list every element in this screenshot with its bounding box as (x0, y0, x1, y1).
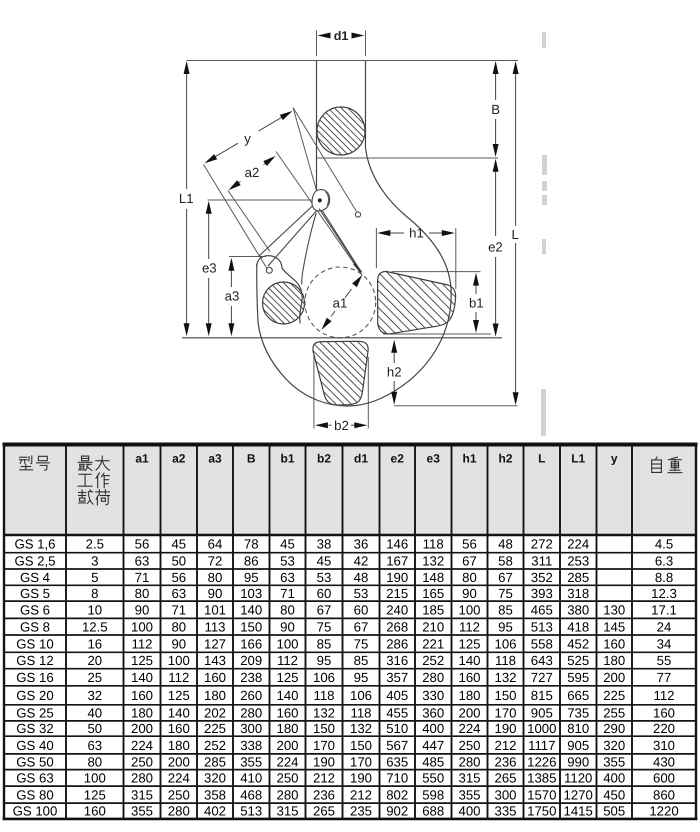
svg-text:e2: e2 (488, 240, 503, 255)
svg-text:150: 150 (313, 721, 335, 736)
svg-text:63: 63 (171, 586, 186, 601)
svg-text:272: 272 (531, 537, 553, 552)
svg-text:a2: a2 (245, 165, 260, 180)
svg-text:132: 132 (313, 706, 335, 721)
svg-text:402: 402 (204, 804, 226, 819)
svg-text:167: 167 (386, 554, 408, 569)
svg-text:300: 300 (494, 787, 516, 802)
svg-text:190: 190 (350, 771, 372, 786)
svg-text:180: 180 (603, 653, 625, 668)
svg-text:GS 6: GS 6 (20, 603, 50, 618)
svg-text:b1: b1 (469, 296, 484, 311)
svg-text:143: 143 (204, 653, 226, 668)
svg-text:166: 166 (240, 636, 262, 651)
svg-text:236: 236 (494, 755, 516, 770)
svg-text:160: 160 (84, 804, 106, 819)
svg-text:1385: 1385 (527, 771, 556, 786)
svg-text:106: 106 (350, 688, 372, 703)
svg-text:90: 90 (135, 603, 150, 618)
svg-text:71: 71 (135, 570, 150, 585)
svg-text:200: 200 (168, 755, 190, 770)
svg-text:112: 112 (277, 653, 298, 668)
svg-text:32: 32 (87, 688, 102, 703)
svg-text:418: 418 (567, 619, 589, 634)
svg-text:200: 200 (276, 738, 298, 753)
svg-text:355: 355 (131, 804, 153, 819)
svg-text:290: 290 (603, 721, 625, 736)
svg-text:1000: 1000 (527, 721, 556, 736)
svg-text:180: 180 (131, 706, 153, 721)
svg-text:315: 315 (276, 804, 298, 819)
svg-text:100: 100 (84, 771, 106, 786)
svg-text:335: 335 (494, 804, 516, 819)
svg-text:160: 160 (458, 670, 480, 685)
svg-text:77: 77 (657, 670, 672, 685)
svg-text:d1: d1 (354, 452, 368, 466)
svg-text:525: 525 (567, 653, 589, 668)
svg-text:86: 86 (244, 554, 259, 569)
svg-text:50: 50 (171, 554, 186, 569)
svg-text:265: 265 (313, 804, 335, 819)
svg-text:400: 400 (603, 771, 625, 786)
svg-text:118: 118 (313, 688, 334, 703)
svg-text:125: 125 (168, 688, 190, 703)
svg-text:80: 80 (280, 603, 295, 618)
svg-text:510: 510 (386, 721, 408, 736)
svg-text:GS 2,5: GS 2,5 (14, 554, 55, 569)
svg-text:53: 53 (317, 570, 332, 585)
svg-text:558: 558 (531, 636, 553, 651)
svg-text:150: 150 (494, 688, 516, 703)
svg-text:8.8: 8.8 (655, 570, 673, 585)
svg-text:220: 220 (653, 721, 675, 736)
svg-text:a1: a1 (333, 296, 348, 311)
svg-text:56: 56 (135, 537, 150, 552)
svg-text:112: 112 (653, 688, 674, 703)
svg-text:95: 95 (498, 619, 513, 634)
svg-text:148: 148 (422, 570, 444, 585)
svg-text:50: 50 (87, 721, 102, 736)
svg-text:67: 67 (354, 619, 369, 634)
svg-text:200: 200 (131, 721, 153, 736)
svg-text:3: 3 (91, 554, 98, 569)
svg-text:180: 180 (276, 721, 298, 736)
svg-text:240: 240 (386, 603, 408, 618)
svg-text:L: L (538, 452, 545, 466)
svg-text:160: 160 (168, 721, 190, 736)
svg-text:1415: 1415 (564, 804, 593, 819)
svg-text:24: 24 (657, 619, 672, 634)
svg-text:485: 485 (422, 755, 444, 770)
svg-text:90: 90 (208, 586, 223, 601)
svg-text:20: 20 (87, 653, 102, 668)
svg-text:100: 100 (131, 619, 153, 634)
svg-text:55: 55 (657, 653, 672, 668)
svg-text:25: 25 (87, 670, 102, 685)
svg-text:101: 101 (204, 603, 226, 618)
svg-text:300: 300 (240, 721, 262, 736)
svg-text:e3: e3 (427, 452, 441, 466)
svg-text:75: 75 (317, 619, 332, 634)
svg-text:688: 688 (422, 804, 444, 819)
svg-text:250: 250 (458, 738, 480, 753)
svg-text:B: B (491, 102, 500, 117)
svg-text:67: 67 (317, 603, 332, 618)
svg-text:b2: b2 (334, 418, 349, 433)
svg-text:505: 505 (603, 804, 625, 819)
svg-text:316: 316 (386, 653, 408, 668)
svg-text:311: 311 (531, 554, 552, 569)
svg-text:71: 71 (171, 603, 186, 618)
svg-text:112: 112 (131, 636, 152, 651)
svg-text:118: 118 (423, 537, 444, 552)
svg-text:727: 727 (531, 670, 553, 685)
svg-text:1570: 1570 (527, 787, 556, 802)
svg-text:145: 145 (603, 619, 625, 634)
svg-text:106: 106 (313, 670, 335, 685)
svg-text:600: 600 (653, 771, 675, 786)
svg-text:513: 513 (531, 619, 553, 634)
svg-text:4.5: 4.5 (655, 537, 673, 552)
svg-text:236: 236 (313, 787, 335, 802)
svg-text:132: 132 (494, 670, 516, 685)
svg-text:GS 1,6: GS 1,6 (14, 537, 55, 552)
svg-text:GS 10: GS 10 (16, 636, 53, 651)
svg-text:b1: b1 (280, 452, 294, 466)
svg-text:280: 280 (131, 771, 153, 786)
svg-text:a1: a1 (135, 452, 149, 466)
svg-text:635: 635 (386, 755, 408, 770)
svg-text:221: 221 (422, 636, 444, 651)
svg-text:a3: a3 (208, 452, 222, 466)
svg-text:67: 67 (498, 570, 513, 585)
svg-text:355: 355 (240, 755, 262, 770)
svg-text:180: 180 (168, 738, 190, 753)
svg-text:132: 132 (422, 554, 444, 569)
svg-text:90: 90 (280, 619, 295, 634)
svg-text:2.5: 2.5 (86, 537, 104, 552)
svg-text:140: 140 (168, 706, 190, 721)
svg-text:595: 595 (567, 670, 589, 685)
svg-text:h2: h2 (498, 452, 512, 466)
svg-text:L: L (512, 227, 519, 242)
svg-text:80: 80 (135, 586, 150, 601)
svg-text:320: 320 (204, 771, 226, 786)
svg-text:252: 252 (422, 653, 444, 668)
svg-text:125: 125 (131, 653, 153, 668)
svg-text:5: 5 (91, 570, 98, 585)
svg-text:405: 405 (386, 688, 408, 703)
svg-text:GS 25: GS 25 (16, 706, 53, 721)
svg-text:170: 170 (494, 706, 516, 721)
svg-text:170: 170 (313, 738, 335, 753)
svg-text:63: 63 (87, 738, 102, 753)
svg-text:36: 36 (354, 537, 369, 552)
svg-text:64: 64 (208, 537, 223, 552)
svg-text:250: 250 (168, 787, 190, 802)
svg-text:815: 815 (531, 688, 553, 703)
svg-text:12.3: 12.3 (651, 586, 677, 601)
svg-text:40: 40 (87, 706, 102, 721)
svg-text:810: 810 (567, 721, 589, 736)
svg-text:8: 8 (91, 586, 98, 601)
svg-text:100: 100 (276, 636, 298, 651)
svg-text:60: 60 (317, 586, 332, 601)
svg-text:146: 146 (386, 537, 408, 552)
svg-text:280: 280 (276, 787, 298, 802)
svg-text:90: 90 (462, 586, 477, 601)
svg-text:1117: 1117 (528, 738, 555, 753)
svg-text:56: 56 (171, 570, 186, 585)
svg-text:513: 513 (240, 804, 262, 819)
svg-text:280: 280 (240, 706, 262, 721)
svg-text:GS 80: GS 80 (16, 787, 53, 802)
svg-text:y: y (244, 131, 251, 146)
svg-text:GS 4: GS 4 (20, 570, 50, 585)
svg-text:GS 20: GS 20 (16, 688, 53, 703)
svg-text:d1: d1 (334, 29, 349, 43)
svg-text:140: 140 (131, 670, 153, 685)
svg-text:1750: 1750 (527, 804, 556, 819)
svg-text:224: 224 (131, 738, 153, 753)
svg-text:75: 75 (498, 586, 513, 601)
svg-text:315: 315 (131, 787, 153, 802)
svg-text:250: 250 (276, 771, 298, 786)
svg-text:h2: h2 (387, 365, 402, 380)
svg-text:160: 160 (653, 706, 675, 721)
svg-text:710: 710 (386, 771, 408, 786)
svg-text:150: 150 (240, 619, 262, 634)
svg-text:190: 190 (386, 570, 408, 585)
svg-text:225: 225 (204, 721, 226, 736)
svg-text:y: y (611, 452, 618, 466)
svg-text:e2: e2 (391, 452, 405, 466)
svg-text:224: 224 (567, 537, 589, 552)
svg-text:GS 32: GS 32 (16, 721, 53, 736)
svg-text:455: 455 (386, 706, 408, 721)
svg-text:598: 598 (422, 787, 444, 802)
svg-text:360: 360 (422, 706, 444, 721)
svg-text:200: 200 (603, 670, 625, 685)
svg-text:160: 160 (603, 636, 625, 651)
svg-text:180: 180 (204, 688, 226, 703)
svg-text:h1: h1 (462, 452, 476, 466)
svg-text:56: 56 (462, 537, 477, 552)
svg-text:210: 210 (422, 619, 444, 634)
svg-text:358: 358 (204, 787, 226, 802)
svg-text:285: 285 (567, 570, 589, 585)
svg-text:67: 67 (462, 554, 477, 569)
svg-text:235: 235 (350, 804, 372, 819)
svg-text:212: 212 (350, 787, 372, 802)
svg-text:42: 42 (354, 554, 369, 569)
svg-text:140: 140 (240, 603, 262, 618)
svg-text:1220: 1220 (649, 804, 678, 819)
svg-text:310: 310 (653, 738, 675, 753)
svg-text:280: 280 (422, 670, 444, 685)
svg-text:860: 860 (653, 787, 675, 802)
svg-text:127: 127 (204, 636, 226, 651)
svg-text:85: 85 (498, 603, 513, 618)
svg-text:GS 12: GS 12 (16, 653, 53, 668)
svg-text:265: 265 (494, 771, 516, 786)
svg-text:180: 180 (458, 688, 480, 703)
svg-text:285: 285 (204, 755, 226, 770)
svg-text:38: 38 (317, 537, 332, 552)
svg-text:48: 48 (354, 570, 369, 585)
svg-text:L1: L1 (179, 191, 194, 206)
svg-text:225: 225 (603, 688, 625, 703)
svg-text:6.3: 6.3 (655, 554, 673, 569)
svg-text:468: 468 (240, 787, 262, 802)
svg-text:95: 95 (354, 670, 369, 685)
svg-text:450: 450 (603, 787, 625, 802)
svg-text:125: 125 (84, 787, 106, 802)
svg-text:106: 106 (494, 636, 516, 651)
svg-text:12.5: 12.5 (82, 619, 108, 634)
svg-text:80: 80 (87, 755, 102, 770)
svg-text:e3: e3 (202, 261, 217, 276)
svg-text:280: 280 (458, 755, 480, 770)
svg-text:567: 567 (386, 738, 408, 753)
svg-text:160: 160 (131, 688, 153, 703)
svg-text:h1: h1 (409, 226, 424, 241)
svg-text:802: 802 (386, 787, 408, 802)
svg-text:L1: L1 (571, 452, 585, 466)
svg-text:160: 160 (204, 670, 226, 685)
svg-text:140: 140 (458, 653, 480, 668)
svg-text:170: 170 (350, 755, 372, 770)
svg-text:200: 200 (458, 706, 480, 721)
svg-text:45: 45 (171, 537, 186, 552)
svg-text:902: 902 (386, 804, 408, 819)
svg-text:100: 100 (458, 603, 480, 618)
svg-text:260: 260 (240, 688, 262, 703)
svg-text:315: 315 (458, 771, 480, 786)
svg-text:63: 63 (135, 554, 150, 569)
svg-text:238: 238 (240, 670, 262, 685)
svg-text:113: 113 (204, 619, 225, 634)
svg-text:125: 125 (276, 670, 298, 685)
svg-text:B: B (247, 452, 256, 466)
svg-text:224: 224 (168, 771, 190, 786)
svg-text:355: 355 (603, 755, 625, 770)
svg-text:190: 190 (313, 755, 335, 770)
svg-text:71: 71 (280, 586, 295, 601)
svg-text:352: 352 (531, 570, 553, 585)
svg-text:338: 338 (240, 738, 262, 753)
svg-text:465: 465 (531, 603, 553, 618)
svg-text:85: 85 (317, 636, 332, 651)
svg-text:GS 63: GS 63 (16, 771, 53, 786)
svg-text:63: 63 (280, 570, 295, 585)
svg-text:103: 103 (240, 586, 262, 601)
svg-text:430: 430 (653, 755, 675, 770)
svg-text:80: 80 (462, 570, 477, 585)
svg-text:905: 905 (567, 738, 589, 753)
svg-text:393: 393 (531, 586, 553, 601)
svg-text:400: 400 (458, 804, 480, 819)
svg-text:118: 118 (495, 653, 516, 668)
svg-text:72: 72 (208, 554, 223, 569)
svg-text:355: 355 (458, 787, 480, 802)
svg-text:48: 48 (498, 537, 513, 552)
svg-text:75: 75 (354, 636, 369, 651)
svg-text:80: 80 (171, 619, 186, 634)
svg-text:45: 45 (280, 537, 295, 552)
svg-text:224: 224 (458, 721, 480, 736)
svg-text:85: 85 (354, 653, 369, 668)
svg-text:GS 5: GS 5 (20, 586, 50, 601)
svg-text:45: 45 (317, 554, 332, 569)
svg-text:GS 100: GS 100 (13, 804, 58, 819)
svg-text:209: 209 (240, 653, 262, 668)
svg-text:643: 643 (531, 653, 553, 668)
svg-text:550: 550 (422, 771, 444, 786)
svg-text:165: 165 (422, 586, 444, 601)
svg-text:16: 16 (87, 636, 102, 651)
svg-text:665: 665 (567, 688, 589, 703)
svg-text:95: 95 (317, 653, 332, 668)
svg-text:10: 10 (87, 603, 102, 618)
svg-text:1270: 1270 (564, 787, 593, 802)
svg-text:150: 150 (350, 738, 372, 753)
svg-text:100: 100 (168, 653, 190, 668)
svg-text:320: 320 (603, 738, 625, 753)
svg-text:452: 452 (567, 636, 589, 651)
svg-text:185: 185 (422, 603, 444, 618)
svg-text:GS 8: GS 8 (20, 619, 50, 634)
svg-text:112: 112 (168, 670, 189, 685)
svg-text:1120: 1120 (564, 771, 592, 786)
svg-text:a2: a2 (172, 452, 186, 466)
svg-text:60: 60 (354, 603, 369, 618)
svg-text:GS 50: GS 50 (16, 755, 53, 770)
svg-text:250: 250 (131, 755, 153, 770)
svg-text:78: 78 (244, 537, 259, 552)
svg-text:a3: a3 (225, 289, 240, 304)
svg-text:202: 202 (204, 706, 226, 721)
svg-text:1226: 1226 (527, 755, 556, 770)
svg-text:253: 253 (567, 554, 589, 569)
svg-text:80: 80 (208, 570, 223, 585)
svg-text:735: 735 (567, 706, 589, 721)
svg-text:447: 447 (422, 738, 444, 753)
svg-text:212: 212 (494, 738, 516, 753)
svg-text:380: 380 (567, 603, 589, 618)
svg-text:GS 40: GS 40 (16, 738, 53, 753)
svg-text:140: 140 (276, 688, 298, 703)
svg-text:330: 330 (422, 688, 444, 703)
svg-text:286: 286 (386, 636, 408, 651)
svg-text:132: 132 (350, 721, 372, 736)
svg-text:95: 95 (244, 570, 259, 585)
svg-text:b2: b2 (317, 452, 331, 466)
svg-text:190: 190 (494, 721, 516, 736)
svg-text:34: 34 (657, 636, 672, 651)
svg-text:255: 255 (603, 706, 625, 721)
svg-text:118: 118 (350, 706, 371, 721)
svg-text:53: 53 (280, 554, 295, 569)
svg-text:410: 410 (240, 771, 262, 786)
svg-text:357: 357 (386, 670, 408, 685)
svg-text:53: 53 (354, 586, 369, 601)
svg-text:990: 990 (567, 755, 589, 770)
svg-text:90: 90 (171, 636, 186, 651)
svg-text:58: 58 (498, 554, 513, 569)
svg-text:130: 130 (603, 603, 625, 618)
svg-text:224: 224 (276, 755, 298, 770)
